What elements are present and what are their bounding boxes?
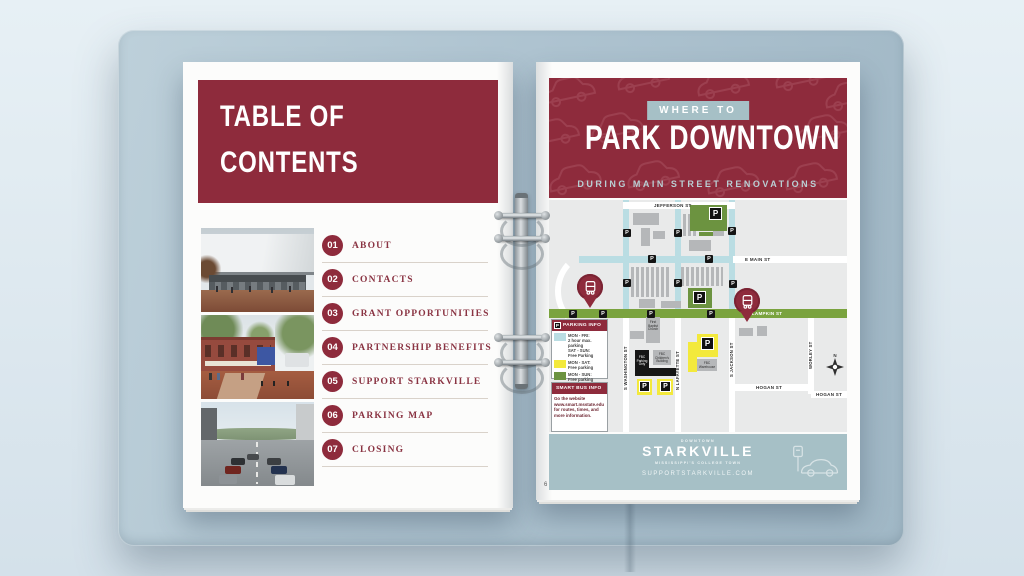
smart-bus-line: for routes, times, and (554, 407, 599, 412)
banner-title-text: PARK DOWNTOWN (585, 119, 840, 158)
toc-item-contacts: 02 CONTACTS (322, 263, 488, 297)
parking-marker-icon: P (705, 255, 713, 263)
parking-map: P P First Baptist Church FBC Parking Onl… (549, 200, 847, 432)
street-label-s-washington: S WASHINGTON ST (623, 326, 628, 390)
legend-row-green: MON - SUN: Free parking (554, 372, 606, 382)
bus-stop-pin-east (734, 288, 760, 314)
street-label-jefferson: JEFFERSON ST (654, 203, 692, 208)
toc-number-badge: 05 (322, 371, 343, 392)
toc-header-block: TABLE OF CONTENTS (198, 80, 498, 203)
legend-row-blue: MON - FRI: 2 hour max. parking SAT - SUN… (554, 333, 606, 358)
parking-marker-icon: P (623, 229, 631, 237)
page-footer: DOWNTOWN STARKVILLE MISSISSIPPI'S COLLEG… (549, 434, 847, 490)
parking-info-header: P PARKING INFO (552, 320, 607, 331)
toc-title-line2: CONTENTS (220, 140, 358, 186)
toc-label: PARKING MAP (352, 411, 433, 421)
toc-label: CLOSING (352, 445, 404, 455)
toc-photo-street-with-cars (201, 402, 314, 486)
parking-sign-icon: P (701, 337, 714, 350)
binder-ring-1 (497, 213, 547, 218)
banner-eyebrow: WHERE TO (647, 101, 749, 120)
smart-bus-line: Go the website (554, 396, 585, 401)
smart-bus-line: www.smart.msstate.edu (554, 402, 604, 407)
street-label-e-main: E MAIN ST (745, 257, 770, 262)
toc-number-badge: 03 (322, 303, 343, 324)
toc-number-badge: 01 (322, 235, 343, 256)
street-lampkin (549, 309, 847, 318)
parking-marker-icon: P (674, 279, 682, 287)
street-label-hogan: HOGAN ST (756, 385, 782, 390)
toc-label: GRANT OPPORTUNITIES (352, 309, 490, 319)
toc-item-parking-map: 06 PARKING MAP (322, 399, 488, 433)
smart-bus-title: SMART BUS INFO (556, 386, 602, 391)
building-label: FBC Parking Only (635, 356, 649, 367)
bus-stop-pin-west (577, 274, 603, 300)
toc-item-partnership-benefits: 04 PARTNERSHIP BENEFITS (322, 331, 488, 365)
parking-info-title: PARKING INFO (563, 323, 601, 328)
parking-marker-icon: P (599, 310, 607, 318)
smart-bus-line: more information. (554, 413, 591, 418)
binder-ring-2 (497, 236, 547, 241)
parking-info-legend: P PARKING INFO MON - FRI: 2 hour max. pa… (551, 319, 608, 379)
parking-sign-icon: P (660, 381, 671, 392)
parking-sign-icon: P (554, 322, 561, 329)
smart-bus-header: SMART BUS INFO (552, 383, 607, 394)
toc-label: SUPPORT STARKVILLE (352, 377, 481, 387)
toc-item-about: 01 ABOUT (322, 229, 488, 263)
toc-number-badge: 07 (322, 439, 343, 460)
legend-row-yellow: MON - SAT: Free parking (554, 360, 606, 370)
toc-label: PARTNERSHIP BENEFITS (352, 343, 492, 353)
toc-number-badge: 02 (322, 269, 343, 290)
toc-label: ABOUT (352, 241, 392, 251)
page-title: TABLE OF CONTENTS (220, 94, 393, 186)
toc-item-support-starkville: 05 SUPPORT STARKVILLE (322, 365, 488, 399)
toc-item-grant-opportunities: 03 GRANT OPPORTUNITIES (322, 297, 488, 331)
ring-shadow-arc (500, 238, 544, 270)
left-page: TABLE OF CONTENTS (183, 62, 513, 508)
legend-text: 2 hour max. parking (568, 338, 592, 348)
parking-marker-icon: P (729, 280, 737, 288)
legend-swatch-green (554, 372, 566, 380)
binder-ring-4 (497, 360, 547, 365)
banner-subtitle: DURING MAIN STREET RENOVATIONS (549, 179, 847, 189)
toc-number-badge: 06 (322, 405, 343, 426)
parking-sign-icon: P (639, 381, 650, 392)
street-label-worley: WORLEY ST (808, 324, 813, 369)
smart-bus-text: Go the website www.smart.msstate.edu for… (552, 394, 607, 420)
toc-number-badge: 04 (322, 337, 343, 358)
parking-marker-icon: P (648, 255, 656, 263)
binder-mockup-scene: TABLE OF CONTENTS (0, 0, 1024, 576)
bus-icon (583, 280, 598, 295)
svg-text:N: N (833, 353, 836, 358)
parking-marker-icon: P (647, 310, 655, 318)
banner-title: PARK DOWNTOWN (549, 119, 847, 158)
parking-marker-icon: P (674, 229, 682, 237)
compass-rose-icon: N (825, 352, 845, 378)
right-page: WHERE TO PARK DOWNTOWN DURING MAIN STREE… (536, 62, 860, 500)
smart-bus-info-box: SMART BUS INFO Go the website www.smart.… (551, 382, 608, 432)
legend-text: Free parking (568, 365, 593, 370)
street-label-s-jackson: S JACKSON ST (729, 322, 734, 377)
parking-marker-icon: P (569, 310, 577, 318)
parking-marker-icon: P (728, 227, 736, 235)
page-number: 6 (544, 482, 547, 488)
toc-label: CONTACTS (352, 275, 414, 285)
toc-photo-brick-storefronts (201, 315, 314, 399)
building-label: FBC Children's Building (653, 353, 671, 364)
toc-title-line1: TABLE OF (220, 94, 345, 140)
toc-photo-building-rendering (201, 228, 314, 312)
parking-marker-icon: P (707, 310, 715, 318)
binder-ring-3 (497, 335, 547, 340)
car-parking-meter-icon (789, 440, 839, 484)
ring-shadow-arc (500, 362, 544, 394)
building-label: First Baptist Church (646, 321, 660, 332)
parking-sign-icon: P (693, 291, 706, 304)
legend-swatch-blue (554, 333, 566, 341)
building-label: FBC Warehouse (697, 362, 717, 369)
toc-item-closing: 07 CLOSING (322, 433, 488, 467)
free-parking-lot-yellow-strip (688, 342, 697, 372)
parking-marker-icon: P (623, 279, 631, 287)
toc-list: 01 ABOUT 02 CONTACTS 03 GRANT OPPORTUNIT… (322, 229, 488, 467)
legend-swatch-yellow (554, 360, 566, 368)
parking-sign-icon: P (709, 207, 722, 220)
legend-text: Free Parking (568, 353, 593, 358)
street-label-n-lafayette: N LAFAYETTE ST (675, 326, 680, 390)
bus-icon (740, 294, 755, 309)
street-label-hogan-east: HOGAN ST (816, 392, 842, 397)
parking-banner: WHERE TO PARK DOWNTOWN DURING MAIN STREE… (549, 78, 847, 198)
